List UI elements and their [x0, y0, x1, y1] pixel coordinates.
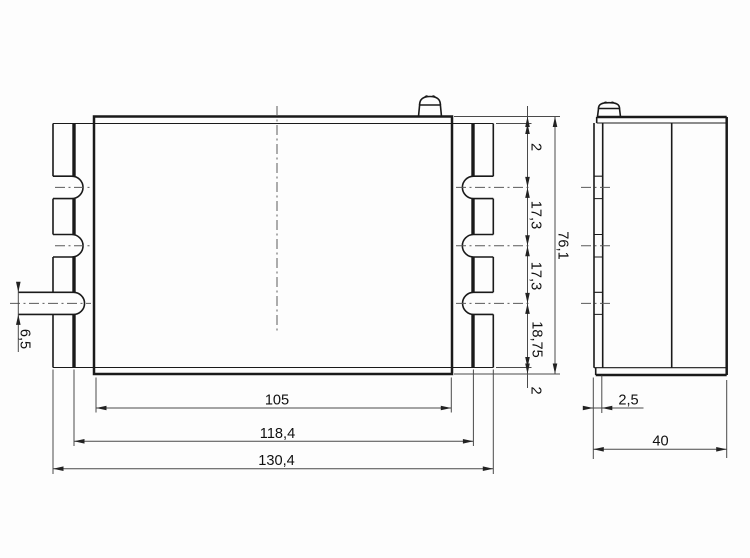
dim-label-slot-pitch-upper: 17,3: [528, 201, 544, 229]
front-view: [10, 96, 531, 374]
dim-label-overall-width: 130,4: [258, 453, 295, 469]
dim-label-plate-width: 118,4: [260, 426, 295, 442]
side-flange-strip-breaks: [594, 176, 603, 314]
dim-label-plate-thickness: 2,5: [618, 393, 638, 409]
technical-drawing: 2 17,3 17,3 18,75 2 76,1 6,5 105 118,4 1…: [0, 0, 750, 558]
dim-label-inner-width: 105: [265, 393, 289, 409]
front-screw-icon: [419, 96, 442, 117]
left-slot-centerlines: [10, 187, 91, 303]
drawing-svg: 2 17,3 17,3 18,75 2 76,1 6,5 105 118,4 1…: [0, 0, 750, 558]
dim-label-tongue-width: 6,5: [17, 329, 33, 349]
side-view: [581, 102, 727, 375]
dim-label-depth: 40: [652, 433, 668, 449]
plate-thickness-dimension: [584, 376, 644, 460]
front-body-outline: [94, 117, 452, 375]
side-screw-icon: [598, 102, 621, 117]
dim-label-top-offset: 2: [528, 143, 544, 151]
dim-label-bottom-offset: 2: [528, 386, 544, 394]
side-screw-centerlines: [581, 187, 610, 303]
dimension-annotations: 2 17,3 17,3 18,75 2 76,1 6,5 105 118,4 1…: [16, 106, 727, 474]
dim-label-slot-to-bottom: 18,75: [529, 321, 545, 358]
dim-label-slot-pitch-lower: 17,3: [528, 262, 544, 290]
dim-label-overall-height: 76,1: [555, 231, 571, 259]
